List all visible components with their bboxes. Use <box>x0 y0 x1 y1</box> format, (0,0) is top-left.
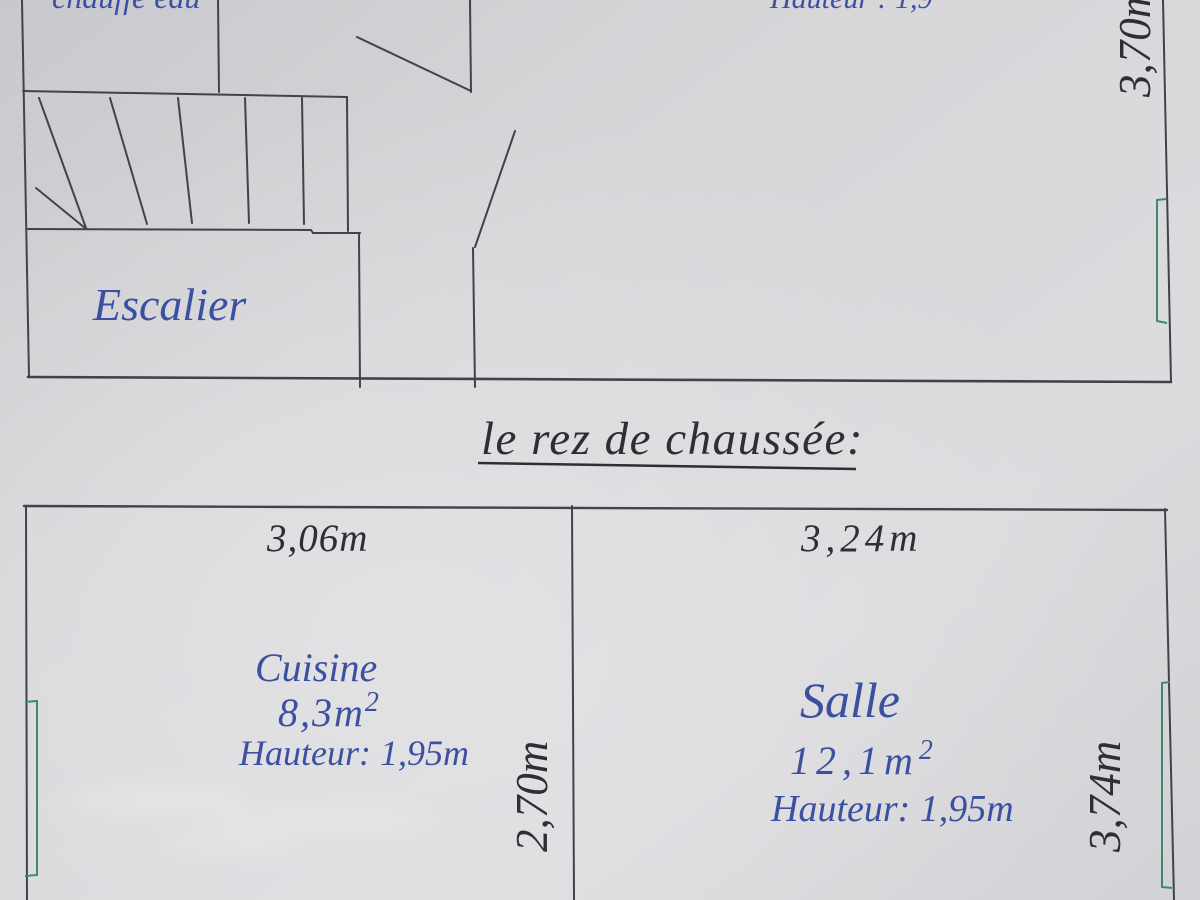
svg-text:chauffe eau: chauffe eau <box>52 0 200 15</box>
svg-text:12,1m2: 12,1m2 <box>790 735 939 783</box>
svg-text:3,70m: 3,70m <box>1110 0 1160 98</box>
svg-text:Salle: Salle <box>800 672 900 728</box>
svg-text:3,24m: 3,24m <box>800 517 922 560</box>
svg-text:3,74m: 3,74m <box>1080 741 1130 853</box>
svg-text:Escalier: Escalier <box>92 279 247 330</box>
svg-text:3,06m: 3,06m <box>266 517 368 560</box>
svg-text:Hauteur: 1,95m: Hauteur: 1,95m <box>238 733 469 773</box>
svg-text:Hauteur : 1,9: Hauteur : 1,9 <box>769 0 932 15</box>
svg-text:le rez de chaussée:: le rez de chaussée: <box>481 413 864 465</box>
svg-text:Hauteur: 1,95m: Hauteur: 1,95m <box>770 788 1014 830</box>
svg-text:2,70m: 2,70m <box>507 741 557 852</box>
svg-text:Cuisine: Cuisine <box>255 645 377 690</box>
